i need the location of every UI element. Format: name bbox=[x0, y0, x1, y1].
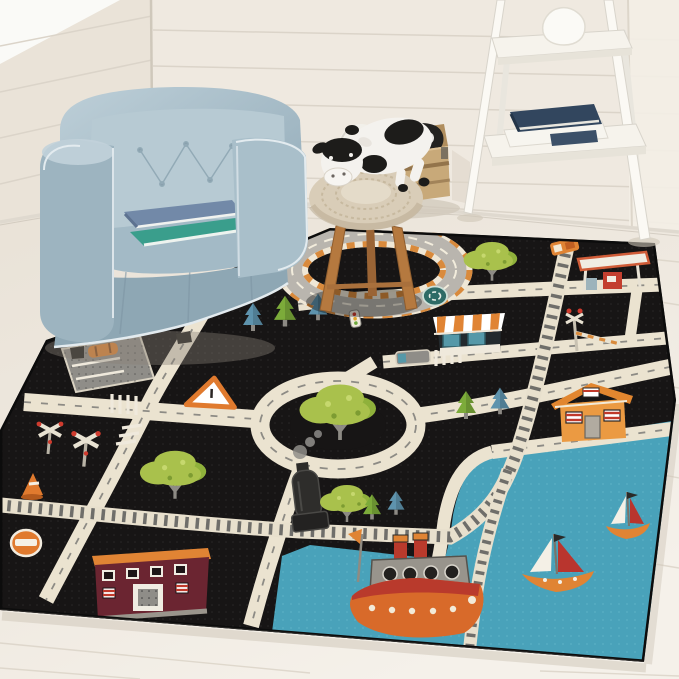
vase bbox=[543, 8, 585, 45]
gray-bus bbox=[396, 350, 431, 365]
chair-right-arm bbox=[232, 138, 308, 278]
roundabout-sign bbox=[423, 287, 447, 306]
no-entry-sign bbox=[11, 530, 41, 556]
chair-foot bbox=[70, 346, 84, 359]
house-window bbox=[604, 410, 620, 421]
house-window bbox=[566, 412, 582, 423]
school-building bbox=[92, 548, 211, 620]
room-illustration bbox=[0, 0, 679, 679]
product-photo bbox=[0, 0, 679, 679]
awning-shop bbox=[433, 313, 505, 356]
chair-left-arm bbox=[40, 140, 114, 343]
